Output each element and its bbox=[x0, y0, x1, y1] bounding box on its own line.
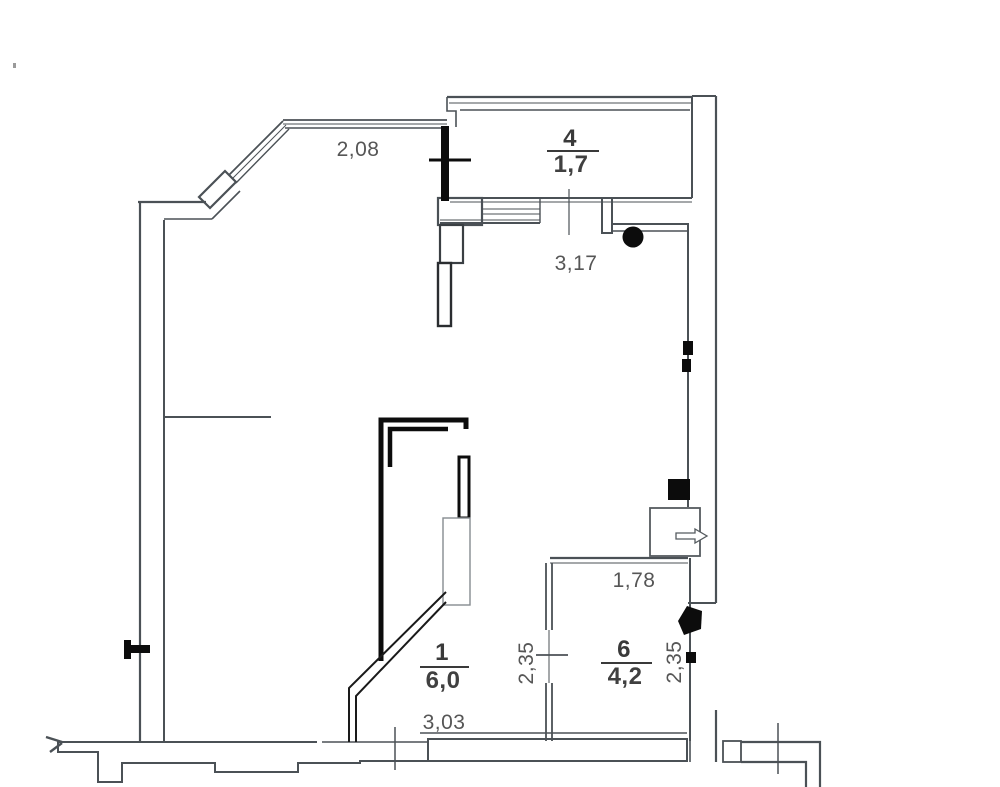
wall-shaft bbox=[438, 263, 451, 326]
room6-number: 6 bbox=[617, 636, 631, 663]
bottom-right-wall-top bbox=[741, 742, 820, 787]
room6-area: 4,2 bbox=[608, 663, 643, 690]
bottom-wall-outer bbox=[58, 752, 428, 782]
floor-plan-drawing: 2,08 4 1,7 3,17 1,78 1 6,0 3,03 6 4,2 2,… bbox=[0, 0, 1000, 787]
bottom-wall-end-arrow bbox=[46, 737, 62, 752]
dim-room1-width: 3,03 bbox=[423, 711, 466, 734]
bay-glazing-diagonal bbox=[236, 129, 289, 183]
wall-flag-icon bbox=[128, 645, 150, 653]
window-glazing bbox=[483, 209, 540, 214]
room4-number: 4 bbox=[563, 125, 577, 152]
panel-box bbox=[650, 508, 707, 556]
bay-glazing-diagonal bbox=[229, 121, 283, 175]
window-jambs bbox=[482, 199, 540, 223]
filled-circle-icon bbox=[623, 227, 644, 248]
balcony-left-step bbox=[447, 97, 456, 127]
floor-plan-canvas: 2,08 4 1,7 3,17 1,78 1 6,0 3,03 6 4,2 2,… bbox=[0, 0, 1000, 787]
dim-room6-depth: 2,35 bbox=[663, 641, 686, 684]
duct-rect bbox=[459, 457, 469, 518]
filled-pentagon-icon bbox=[678, 606, 702, 635]
room4-area: 1,7 bbox=[554, 151, 589, 178]
new-wall-inner bbox=[390, 429, 448, 467]
wall-flag-cap bbox=[124, 640, 131, 659]
dim-hall: 3,17 bbox=[555, 252, 598, 275]
filled-square-icon bbox=[668, 479, 690, 500]
solid-wall-bar bbox=[441, 126, 449, 201]
bottom-right-wall-bottom bbox=[741, 762, 806, 787]
column-rect bbox=[443, 518, 470, 605]
filled-square-icon bbox=[682, 359, 691, 372]
pier-extension bbox=[440, 225, 463, 263]
bottom-opening-jamb-right bbox=[723, 741, 741, 762]
scan-speck bbox=[13, 63, 16, 68]
parapet-pier-right bbox=[602, 198, 612, 233]
dim-room6-top: 1,78 bbox=[613, 569, 656, 592]
room1-number: 1 bbox=[435, 639, 449, 666]
bottom-wall-band bbox=[428, 739, 687, 761]
panel-box-rect bbox=[650, 508, 700, 556]
filled-square-icon bbox=[686, 652, 696, 663]
dim-room1-depth: 2,35 bbox=[515, 642, 538, 685]
bay-wall-pier bbox=[199, 171, 236, 208]
room1-area: 6,0 bbox=[426, 667, 461, 694]
dim-bay: 2,08 bbox=[337, 138, 380, 161]
bay-glazing-diagonal bbox=[232, 125, 286, 179]
topleft-wall-inner-diagonal bbox=[212, 191, 240, 219]
divider-upper bbox=[546, 563, 552, 630]
filled-square-icon bbox=[683, 341, 693, 355]
balcony-room4 bbox=[429, 97, 692, 326]
